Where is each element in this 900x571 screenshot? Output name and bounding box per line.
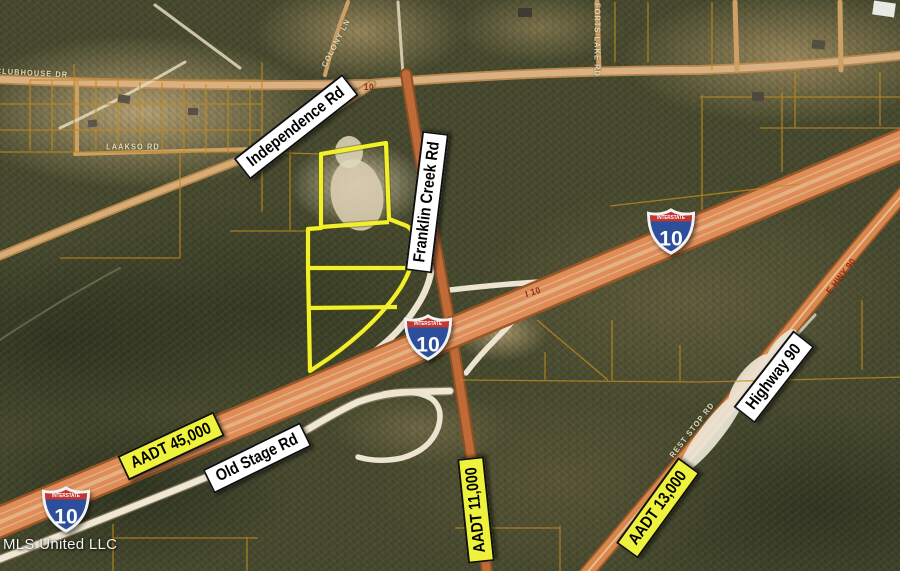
interstate-shield-number: 10 — [54, 505, 77, 528]
map-label-route-10-pavement: 10 — [364, 82, 374, 92]
interstate-shield-number: 10 — [416, 333, 439, 356]
interstate-shield-i10-northeast: INTERSTATE10 — [646, 207, 696, 255]
map-label-laakso-rd: LAAKSO RD — [106, 143, 160, 152]
map-label-rest-stop-rd: REST STOP RD — [668, 401, 717, 460]
map-label-clubhouse-dr: CLUBHOUSE DR — [0, 67, 68, 80]
map-label-e-hwy-90: E HWY 90 — [824, 256, 858, 295]
interstate-shield-i10-southwest: INTERSTATE10 — [41, 485, 91, 533]
interstate-shield-top-text: INTERSTATE — [414, 321, 442, 327]
annotation-layer: Independence RdFranklin Creek RdOld Stag… — [0, 0, 900, 571]
interstate-shield-top-text: INTERSTATE — [52, 493, 80, 499]
aadt-13000-banner: AADT 13,000 — [616, 457, 700, 558]
interstate-shield-top-text: INTERSTATE — [657, 215, 685, 221]
map-label-colony-ln: COLONY LN — [320, 17, 352, 68]
road-banner-franklin-creek-rd: Franklin Creek Rd — [405, 131, 449, 274]
map-label-forts-lake-rd: FORTS LAKE RD — [593, 3, 602, 77]
aadt-11000-banner: AADT 11,000 — [457, 456, 495, 563]
map-label-i-10-pavement: I 10 — [524, 285, 542, 299]
road-banner-highway-90: Highway 90 — [734, 330, 815, 423]
interstate-shield-i10-center: INTERSTATE10 — [403, 313, 453, 361]
interstate-shield-number: 10 — [659, 227, 682, 250]
aerial-map-image: Independence RdFranklin Creek RdOld Stag… — [0, 0, 900, 571]
road-banner-independence-rd: Independence Rd — [234, 74, 359, 180]
watermark: MLS United LLC — [3, 536, 117, 553]
